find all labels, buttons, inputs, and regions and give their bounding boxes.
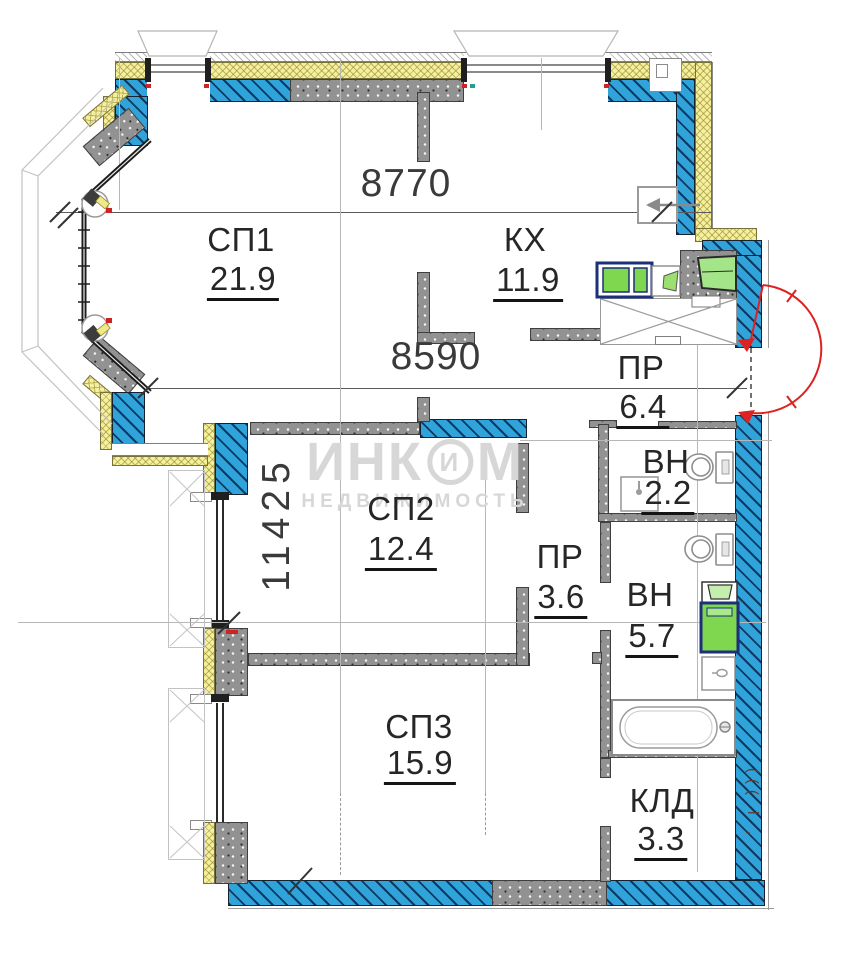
- centerline-v-bath: [697, 255, 698, 872]
- wall-kld-top: [608, 750, 737, 758]
- right-wall-outer-line: [712, 62, 713, 234]
- counter-sink-icon: [652, 266, 680, 296]
- room-area-sp3-value: 15.9: [384, 744, 456, 785]
- wall-stub: [417, 397, 430, 422]
- wall-kld-left-upper: [600, 758, 611, 778]
- wall-vn2-left-upper: [600, 522, 611, 583]
- inkom-logo-icon: И: [427, 439, 473, 485]
- left-wall-pier-top: [215, 423, 248, 495]
- sink-icon-vn2: [702, 657, 735, 690]
- room-area-pr1-value: 6.4: [616, 388, 669, 429]
- centerline-v-main-dashed: [340, 793, 341, 875]
- room-label-kld: КЛД: [630, 782, 695, 820]
- watermark-brand-post: М: [477, 435, 524, 489]
- balcony-outline-2: [168, 688, 205, 860]
- window-frame-cap: [205, 58, 211, 82]
- room-area-sp3: 15.9: [384, 744, 456, 782]
- centerline-v-kx: [541, 58, 542, 130]
- room-area-pr2: 3.6: [534, 578, 587, 616]
- window-frame-cap: [145, 58, 151, 82]
- window-frame-cap: [211, 694, 229, 702]
- centerline-v-sp2-dashed: [485, 793, 486, 835]
- window-left-2b: [222, 703, 224, 822]
- entrance-jamb-upper: [735, 255, 762, 348]
- bottom-outer-line: [228, 908, 774, 909]
- dimension-left-height: 11425: [255, 456, 299, 592]
- room-area-vn1-value: 2.2: [641, 474, 694, 515]
- right-outer-line-upper: [768, 240, 769, 348]
- room-label-pr2: ПР: [537, 538, 584, 576]
- room-area-sp1-value: 21.9: [207, 260, 279, 301]
- washing-machine-icon: [701, 582, 738, 652]
- wall-sp2-sp3: [248, 653, 530, 666]
- window-glass-line: [467, 71, 605, 73]
- floor-plan: ИНКИМ НЕДВИЖИМОСТЬ: [0, 0, 843, 960]
- room-area-pr1: 6.4: [616, 388, 669, 426]
- room-area-kld-value: 3.3: [634, 820, 687, 861]
- room-area-sp2: 12.4: [365, 530, 437, 568]
- frame-anchor-mark: [204, 84, 209, 88]
- room-area-kx-value: 11.9: [493, 261, 563, 302]
- wall-sp2-right-lower: [516, 587, 529, 666]
- room-area-sp2-value: 12.4: [365, 530, 437, 571]
- bay-pier-bottom: [112, 392, 145, 450]
- top-wall-concrete: [290, 79, 464, 102]
- bay-pier-bottom-insulation: [100, 392, 112, 450]
- window-glass-line: [151, 64, 205, 66]
- frame-anchor-mark: [146, 84, 151, 88]
- window-top-1: [147, 53, 210, 102]
- frame-anchor-mark: [226, 630, 238, 634]
- window-top-2: [464, 53, 608, 102]
- room-area-sp1: 21.9: [207, 260, 279, 298]
- window-left-1: [216, 500, 218, 620]
- window-glass-line: [467, 64, 605, 66]
- dimension-top-width: 8770: [361, 162, 452, 206]
- window-frame-cap: [211, 492, 229, 500]
- wall-stub-sp1-kx-top: [417, 92, 430, 162]
- room-label-sp1: СП1: [207, 221, 274, 259]
- dimension-inner-width: 8590: [391, 335, 482, 379]
- centerline-v-left: [119, 58, 120, 210]
- corner-insulation: [112, 456, 208, 466]
- stove-icon: [597, 263, 652, 297]
- left-wall-pier-bottom: [215, 822, 248, 884]
- room-area-vn2: 5.7: [625, 617, 678, 655]
- dim-line-8770: [56, 212, 712, 213]
- room-label-vn2: ВН: [627, 576, 674, 614]
- left-wall-pier-mid: [215, 628, 248, 696]
- watermark-brand-pre: ИНК: [306, 435, 423, 489]
- centerline-v-main: [340, 58, 341, 793]
- room-label-pr1: ПР: [618, 349, 665, 387]
- frame-anchor-mark: [462, 84, 467, 88]
- wall-kx-hall: [530, 328, 610, 341]
- bottom-wall-concrete: [492, 880, 607, 906]
- vent-grille-icon: [637, 186, 678, 224]
- wall-vent-icon: [649, 58, 682, 92]
- room-area-vn1: 2.2: [641, 474, 694, 512]
- right-outer-line-lower: [768, 413, 769, 910]
- toilet-icon-vn2: [685, 534, 733, 565]
- wall-foot: [592, 652, 602, 664]
- centerline-h-vn1: [520, 440, 772, 441]
- room-area-pr2-value: 3.6: [534, 578, 587, 619]
- bathtub-icon: [612, 700, 735, 755]
- wall-vent-inner: [656, 64, 668, 78]
- watermark-brand: ИНКИМ: [301, 435, 528, 489]
- window-left-1b: [222, 500, 224, 620]
- frame-anchor-mark: [470, 84, 475, 88]
- clipped-edge-text: ((( l ,: [744, 768, 761, 841]
- wall-vn2-left-lower: [600, 630, 611, 758]
- window-frame-cap: [605, 58, 611, 82]
- room-label-sp2: СП2: [367, 490, 434, 528]
- window-left-2: [216, 703, 218, 822]
- shaft-notch: [655, 336, 681, 345]
- window-glass-line: [151, 71, 205, 73]
- room-area-kx: 11.9: [493, 261, 563, 299]
- room-label-kx: КХ: [504, 221, 546, 259]
- room-area-kld: 3.3: [634, 820, 687, 858]
- wall-vn1-left: [598, 424, 609, 514]
- window-frame-cap: [461, 58, 467, 82]
- wall-kld-left-lower: [600, 826, 611, 882]
- frame-anchor-mark: [604, 84, 609, 88]
- corner-cladding: [112, 443, 208, 456]
- room-area-vn2-value: 5.7: [625, 617, 678, 658]
- room-label-sp3: СП3: [385, 708, 452, 746]
- right-wall-insulation-upper: [695, 62, 712, 235]
